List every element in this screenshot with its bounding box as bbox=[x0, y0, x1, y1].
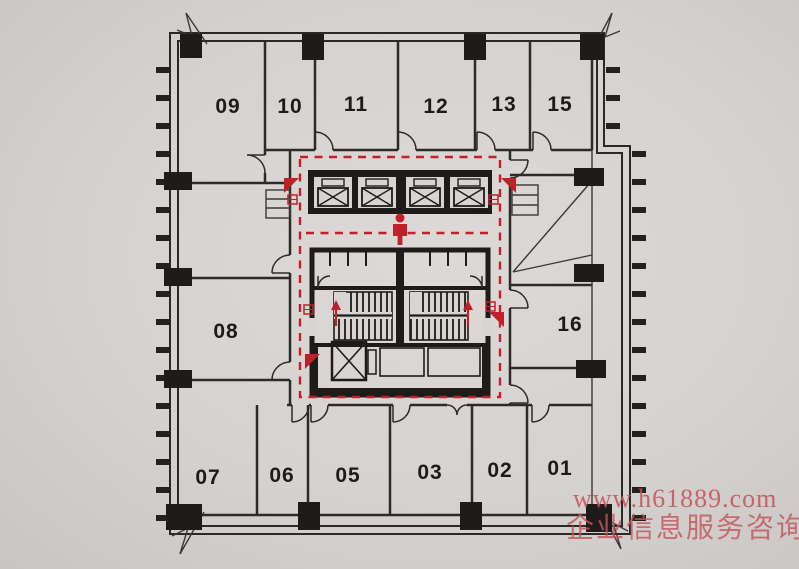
room-label-03: 03 bbox=[417, 461, 442, 484]
room-label-11: 11 bbox=[344, 93, 368, 116]
window-ticks-right-upper bbox=[606, 48, 620, 144]
core bbox=[307, 170, 493, 395]
room-label-07: 07 bbox=[195, 466, 220, 489]
elevator-icon bbox=[314, 177, 352, 208]
room-label-05: 05 bbox=[335, 464, 360, 487]
watermark: www.h61889.com 企业信息服务咨询 bbox=[566, 484, 799, 544]
floor-plan: 09 10 11 12 13 15 08 16 07 06 05 03 02 0… bbox=[0, 0, 799, 569]
service-elevator-icon bbox=[332, 342, 376, 380]
room-label-02: 02 bbox=[487, 459, 512, 482]
room-label-06: 06 bbox=[269, 464, 294, 487]
room-label-16: 16 bbox=[557, 313, 582, 336]
watermark-url: www.h61889.com bbox=[573, 484, 777, 513]
interior-walls bbox=[178, 41, 597, 515]
stairs-icon bbox=[334, 292, 392, 340]
elevator-icon bbox=[358, 177, 396, 208]
core-room bbox=[380, 348, 424, 376]
window-ticks-right-lower bbox=[632, 150, 646, 524]
room-label-12: 12 bbox=[423, 95, 448, 118]
open-bay-diagonals bbox=[513, 183, 592, 272]
elevator-icon bbox=[450, 177, 488, 208]
room-label-10: 10 bbox=[277, 95, 302, 118]
core-room bbox=[428, 348, 480, 376]
stairs-icon bbox=[410, 292, 468, 340]
room-label-08: 08 bbox=[213, 320, 238, 343]
person-icon bbox=[393, 214, 407, 246]
room-label-01: 01 bbox=[547, 457, 572, 480]
shaft-left bbox=[266, 190, 290, 218]
room-label-13: 13 bbox=[491, 93, 516, 116]
room-label-09: 09 bbox=[215, 95, 240, 118]
watermark-slogan: 企业信息服务咨询 bbox=[566, 512, 799, 544]
elevator-icon bbox=[406, 177, 444, 208]
room-label-15: 15 bbox=[547, 93, 572, 116]
elevator-bank bbox=[308, 170, 492, 214]
